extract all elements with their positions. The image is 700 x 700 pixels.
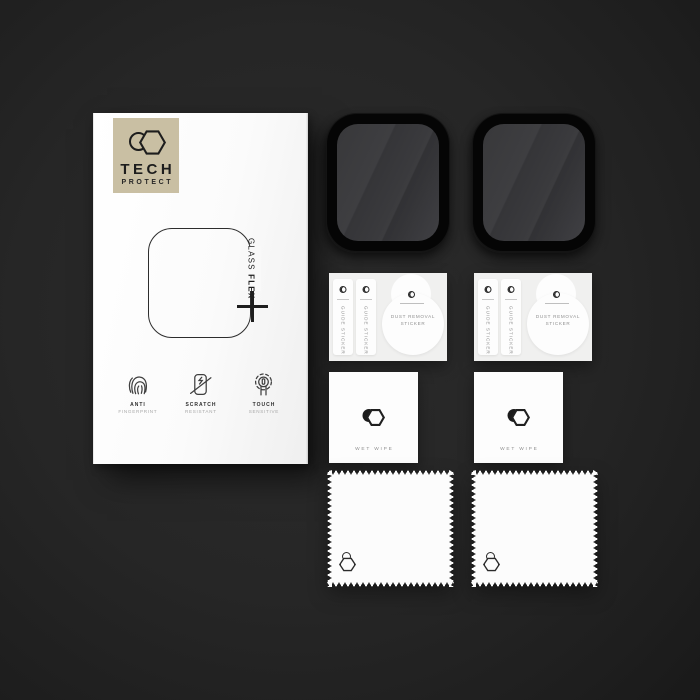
wet-wipe-label: WET WIPE	[474, 447, 563, 452]
mini-logo-icon	[363, 286, 370, 293]
sticker-card-2: GUIDE STICKER GUIDE STICKER DUST REMOVAL…	[474, 273, 592, 361]
brand-subname: PROTECT	[113, 179, 179, 186]
brand-hexagon-logo-icon	[483, 552, 501, 573]
feature-subtitle: FINGERPRINT	[108, 409, 167, 414]
retail-box: TECH PROTECT GLASS FLEX ANTI FINGERPRINT	[93, 113, 308, 464]
protector-glass	[483, 124, 585, 241]
feature-subtitle: SENSITIVE	[234, 409, 293, 414]
watch-screen-outline	[148, 228, 251, 338]
guide-sticker-strip: GUIDE STICKER	[501, 279, 521, 355]
zigzag-edge	[327, 582, 454, 587]
protector-glass	[337, 124, 439, 241]
feature-anti-fingerprint: ANTI FINGERPRINT	[108, 371, 167, 414]
mini-logo-icon	[553, 291, 560, 298]
feature-subtitle: RESISTANT	[171, 409, 230, 414]
wet-wipe-packet-2: WET WIPE	[474, 372, 563, 463]
dust-removal-label: DUST REMOVAL STICKER	[381, 314, 445, 327]
product-line1: GLASS	[247, 238, 256, 271]
mini-logo-icon	[485, 286, 492, 293]
guide-sticker-label: GUIDE STICKER	[486, 306, 491, 355]
feature-title: ANTI	[108, 402, 167, 408]
divider	[545, 303, 569, 304]
zigzag-edge	[471, 582, 598, 587]
divider	[400, 303, 424, 304]
divider	[505, 299, 517, 300]
feature-scratch-resistant: SCRATCH RESISTANT	[171, 371, 230, 414]
mini-logo-icon	[508, 286, 515, 293]
plus-icon	[237, 291, 268, 322]
guide-sticker-strip: GUIDE STICKER	[356, 279, 376, 355]
feature-row: ANTI FINGERPRINT SCRATCH RESISTANT	[108, 371, 294, 414]
dust-removal-label: DUST REMOVAL STICKER	[526, 314, 590, 327]
wet-wipe-packet-1: WET WIPE	[329, 372, 418, 463]
brand-hexagon-logo-icon	[362, 408, 385, 427]
brand-name: TECH	[113, 161, 179, 178]
zigzag-edge	[593, 470, 598, 587]
product-name-vertical: GLASS FLEX	[241, 246, 261, 291]
feature-title: TOUCH	[234, 402, 293, 408]
brand-panel: TECH PROTECT	[113, 118, 179, 193]
microfiber-cloth-1	[327, 470, 454, 587]
divider	[337, 299, 349, 300]
divider	[360, 299, 372, 300]
feature-title: SCRATCH	[171, 402, 230, 408]
sticker-card-1: GUIDE STICKER GUIDE STICKER DUST REMOVAL…	[329, 273, 447, 361]
brand-hexagon-logo-icon	[339, 552, 357, 573]
mini-logo-icon	[408, 291, 415, 298]
product-image: TECH PROTECT GLASS FLEX ANTI FINGERPRINT	[0, 0, 700, 700]
touch-icon	[250, 371, 277, 398]
microfiber-cloth-2	[471, 470, 598, 587]
guide-sticker-label: GUIDE STICKER	[509, 306, 514, 355]
guide-sticker-label: GUIDE STICKER	[364, 306, 369, 355]
zigzag-edge	[449, 470, 454, 587]
screen-protector-1	[327, 114, 449, 251]
wet-wipe-label: WET WIPE	[329, 447, 418, 452]
logo-hexagon-icon	[339, 557, 356, 572]
divider	[482, 299, 494, 300]
brand-hexagon-logo-icon	[126, 129, 166, 156]
brand-hexagon-logo-icon	[507, 408, 530, 427]
guide-sticker-strip: GUIDE STICKER	[478, 279, 498, 355]
guide-sticker-strip: GUIDE STICKER	[333, 279, 353, 355]
feature-touch-sensitive: TOUCH SENSITIVE	[234, 371, 293, 414]
logo-hexagon-icon	[483, 557, 500, 572]
scratch-icon	[187, 371, 214, 398]
screen-protector-2	[473, 114, 595, 251]
fingerprint-icon	[124, 371, 151, 398]
guide-sticker-label: GUIDE STICKER	[341, 306, 346, 355]
mini-logo-icon	[340, 286, 347, 293]
